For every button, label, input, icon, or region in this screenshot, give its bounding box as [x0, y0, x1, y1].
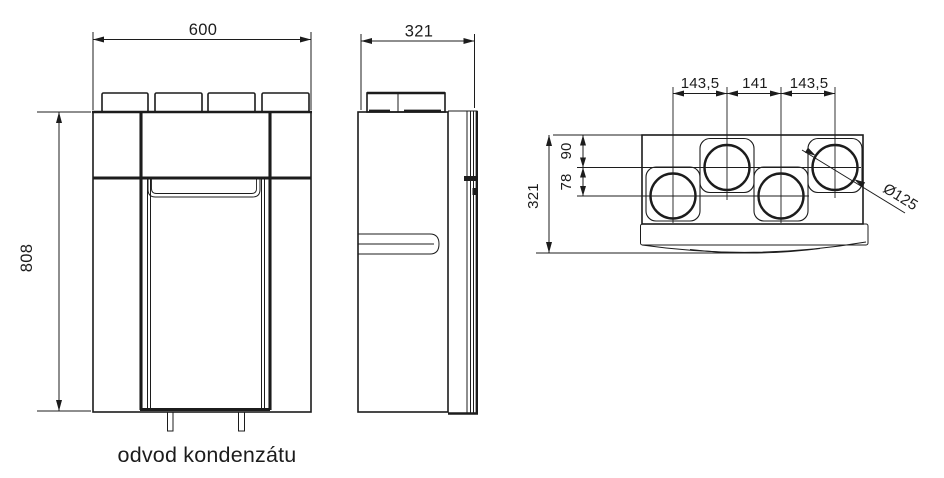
top-spacing-dimensions: 143,5 141 143,5 — [673, 75, 835, 97]
depth-dim-label: 321 — [405, 23, 433, 41]
side-duct-stub — [367, 93, 445, 112]
ventilation-unit-dimension-drawing: odvod kondenzátu 600 808 — [0, 0, 944, 478]
arrowhead — [580, 135, 586, 146]
condensate-pipe-right — [239, 412, 245, 431]
arrowhead — [546, 135, 552, 146]
front-height-dimension: 808 — [18, 112, 91, 411]
width-dim-label: 600 — [189, 21, 217, 39]
arrowhead — [580, 186, 586, 196]
offset-dim-label-90: 90 — [558, 142, 575, 159]
spacing-dim-label-2: 141 — [742, 75, 768, 92]
top-front-band — [641, 224, 869, 245]
port-offset-dimensions: 90 78 — [558, 135, 586, 196]
front-duct-stub-2 — [155, 93, 202, 112]
arrowhead — [580, 168, 586, 178]
arrowhead — [361, 38, 372, 44]
top-door-bow-outer — [642, 242, 866, 252]
arrowhead — [580, 158, 586, 168]
arrowhead — [464, 38, 475, 44]
side-handle-mark — [473, 188, 479, 195]
arrowhead — [770, 91, 781, 97]
arrowhead — [727, 91, 738, 97]
front-duct-stub-1 — [102, 93, 148, 112]
front-duct-stub-4 — [262, 93, 309, 112]
side-body-outline — [358, 112, 448, 412]
arrowhead — [300, 37, 311, 43]
top-depth-dim-label: 321 — [525, 183, 542, 209]
offset-dim-label-78: 78 — [558, 173, 575, 190]
height-dim-label: 808 — [18, 244, 36, 272]
port-diameter-label: Ø125 — [880, 180, 921, 214]
condensate-pipe-left — [168, 412, 174, 431]
side-depth-dimension: 321 — [361, 23, 475, 111]
arrowhead — [56, 400, 62, 411]
top-view: 143,5 141 143,5 321 90 78 — [525, 75, 921, 253]
side-panel-joint-mark — [464, 176, 478, 181]
front-view: odvod kondenzátu 600 808 — [18, 21, 312, 467]
technical-drawing-page: odvod kondenzátu 600 808 — [0, 0, 944, 478]
spacing-dim-label-1: 143,5 — [681, 75, 720, 92]
arrowhead — [93, 37, 104, 43]
front-body-outline — [93, 112, 311, 412]
condensate-drain-caption: odvod kondenzátu — [118, 443, 297, 467]
door-handle-recess-inner — [152, 179, 257, 194]
port-diameter-dimension: Ø125 — [802, 147, 921, 214]
door-handle-recess — [148, 179, 260, 197]
front-duct-stub-3 — [208, 93, 255, 112]
arrowhead — [56, 112, 62, 123]
side-view: 321 — [358, 23, 478, 414]
spacing-dim-label-3: 143,5 — [790, 75, 829, 92]
arrowhead — [546, 242, 552, 253]
top-body-outline — [642, 135, 863, 224]
